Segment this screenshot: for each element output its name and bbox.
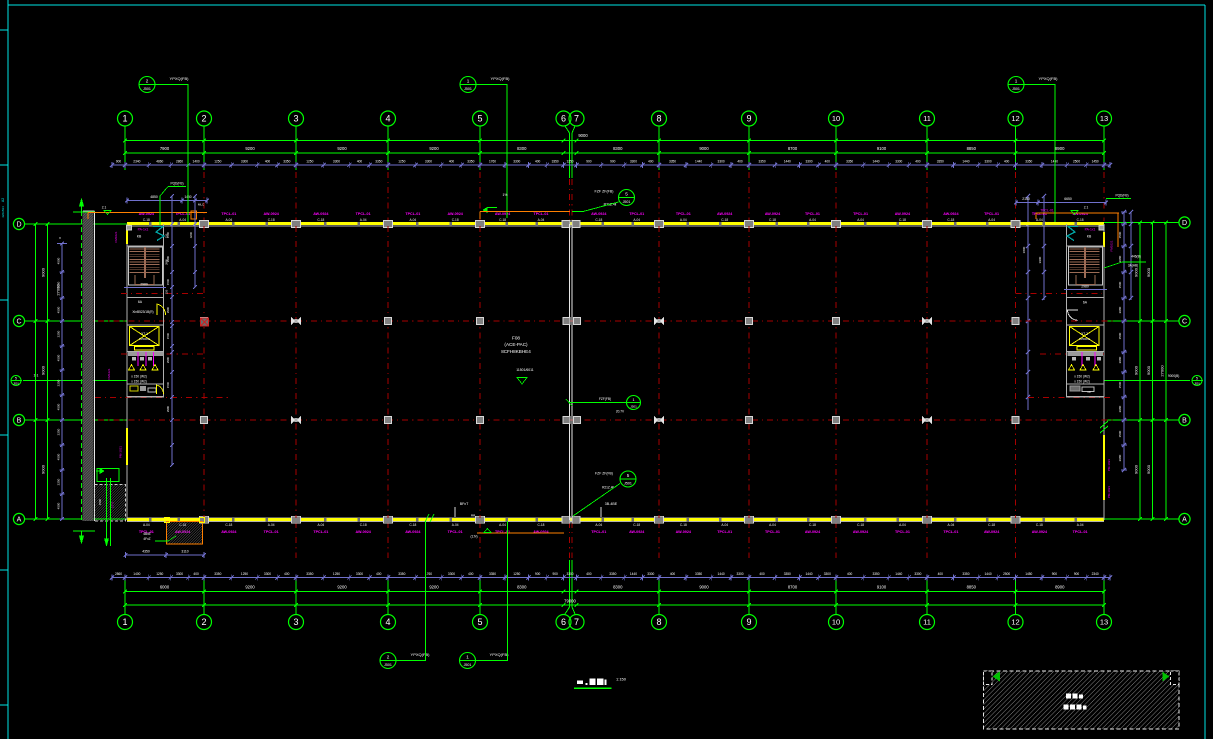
svg-text:3300: 3300 [176,572,183,576]
svg-text:YPXQ(FB): YPXQ(FB) [170,76,190,81]
svg-text:1250: 1250 [513,572,520,576]
svg-text:A-04: A-04 [538,218,545,222]
svg-text:3300: 3300 [513,160,520,164]
svg-text:C-18: C-18 [809,523,816,527]
svg-text:5: 5 [15,376,17,380]
svg-text:9000: 9000 [1146,365,1151,375]
svg-text:4FxZ: 4FxZ [143,537,150,541]
svg-text:3300: 3300 [425,160,432,164]
svg-text:5: 5 [1196,376,1198,380]
svg-text:400: 400 [265,160,271,164]
svg-text:3350: 3350 [306,572,313,576]
svg-text:AW-0924: AW-0924 [356,530,372,534]
svg-text:C-18: C-18 [899,218,906,222]
svg-text:4350: 4350 [142,550,150,554]
svg-text:2980: 2980 [1081,285,1089,289]
svg-text:1250: 1250 [241,572,248,576]
svg-text:400: 400 [376,572,382,576]
svg-text:5: 5 [477,114,482,124]
svg-text:3B-4BE: 3B-4BE [605,502,618,506]
svg-text:A-04: A-04 [409,218,416,222]
svg-text:F08: F08 [512,335,520,340]
svg-text:400: 400 [284,572,290,576]
svg-text:27000: 27000 [1160,365,1165,377]
svg-text:C-18: C-18 [317,218,324,222]
svg-text:9200: 9200 [337,585,347,590]
svg-text:9000: 9000 [578,133,588,138]
svg-text:XT-2: XT-2 [1081,332,1088,336]
svg-text:AW-0924: AW-0924 [495,212,511,216]
svg-text:8900: 8900 [1055,585,1065,590]
svg-text:TPCL-01: TPCL-01 [1040,208,1054,212]
svg-text:446(B): 446(B) [1131,254,1141,258]
svg-text:AW-0924: AW-0924 [717,212,733,216]
svg-text:3: 3 [293,114,298,124]
svg-text:3300: 3300 [895,160,902,164]
svg-text:10: 10 [832,618,840,627]
svg-text:TPCL-01: TPCL-01 [805,212,820,216]
svg-text:C-18: C-18 [268,218,275,222]
svg-text:A-04: A-04 [268,523,275,527]
svg-text:A-04: A-04 [1036,218,1043,222]
svg-text:7: 7 [574,617,579,627]
svg-text:11501/6011: 11501/6011 [516,368,534,372]
svg-text:2250: 2250 [56,281,60,288]
svg-text:9200: 9200 [429,146,439,151]
svg-text:3300: 3300 [914,572,921,576]
svg-text:3300: 3300 [824,572,831,576]
svg-text:2860: 2860 [176,160,183,164]
svg-text:3350: 3350 [846,160,853,164]
svg-text:3350: 3350 [872,572,879,576]
svg-text:AW-0924: AW-0924 [984,530,1000,534]
svg-text:6: 6 [561,114,566,124]
svg-text:A: A [17,517,22,524]
svg-text:2980: 2980 [166,306,170,313]
svg-text:1: 1 [633,398,635,402]
svg-text:2980: 2980 [166,356,170,363]
svg-text:C: C [1182,319,1187,326]
svg-text:3350: 3350 [467,160,474,164]
svg-text:1440: 1440 [895,572,902,576]
svg-text:TPCL-01: TPCL-01 [943,530,958,534]
svg-text:x 150 (W2): x 150 (W2) [1074,375,1090,379]
svg-text:11: 11 [923,114,931,123]
svg-text:TPCL-01: TPCL-01 [629,212,644,216]
svg-text:900: 900 [116,160,122,164]
svg-text:TPCL-01: TPCL-01 [676,212,691,216]
svg-text:400: 400 [449,160,455,164]
svg-text:J501: J501 [1194,382,1200,386]
svg-text:PA-1x1: PA-1x1 [138,228,149,232]
svg-text:8700: 8700 [788,585,798,590]
svg-text:2500: 2500 [1073,160,1080,164]
svg-text:TPCL-01: TPCL-01 [221,212,236,216]
svg-text:2860: 2860 [115,572,122,576]
svg-text:5: 5 [627,473,630,478]
svg-text:11: 11 [923,618,931,627]
svg-text:2500: 2500 [1003,572,1010,576]
svg-text:1050KG: 1050KG [139,337,151,341]
svg-text:400: 400 [737,160,743,164]
svg-text:AW-0924: AW-0924 [895,212,911,216]
svg-text:AW-0924: AW-0924 [591,212,607,216]
svg-text:1500: 1500 [166,332,170,339]
svg-text:2.1: 2.1 [102,206,107,210]
svg-text:9000: 9000 [41,464,46,474]
svg-text:C-18: C-18 [360,523,367,527]
svg-text:6A: 6A [1083,301,1088,305]
svg-text:J501: J501 [1012,87,1020,91]
svg-text:2980: 2980 [140,283,148,287]
svg-text:C-18: C-18 [680,523,687,527]
svg-text:9000: 9000 [1134,267,1139,277]
svg-text:1250: 1250 [398,160,405,164]
svg-text:B: B [1182,418,1187,425]
svg-text:10: 10 [832,114,840,123]
svg-text:1500: 1500 [1118,231,1122,238]
svg-text:7: 7 [574,114,579,124]
svg-text:900: 900 [586,160,592,164]
svg-text:C-18: C-18 [595,218,602,222]
svg-text:1450: 1450 [1092,160,1099,164]
svg-text:9200: 9200 [429,585,439,590]
svg-text:1: 1 [122,114,127,124]
svg-text:J501: J501 [384,663,392,667]
svg-text:1500: 1500 [1118,430,1122,437]
svg-text:C: C [16,319,21,326]
svg-text:3300: 3300 [985,160,992,164]
svg-text:3300: 3300 [264,572,271,576]
svg-text:C-18: C-18 [225,523,232,527]
svg-text:TPCL-01: TPCL-01 [356,212,371,216]
svg-text:13: 13 [1100,114,1108,123]
svg-text:1440: 1440 [985,572,992,576]
svg-text:1440: 1440 [695,160,702,164]
svg-text:2: 2 [387,655,390,660]
svg-text:TPCL-01: TPCL-01 [591,530,606,534]
svg-text:2980: 2980 [1118,454,1122,461]
svg-text:A: A [1182,517,1187,524]
svg-text:J501: J501 [143,87,151,91]
svg-text:MLC: MLC [198,202,205,206]
svg-text:AW-0924: AW-0924 [853,530,869,534]
svg-text:TPCL-01: TPCL-01 [1073,530,1088,534]
svg-text:A-04: A-04 [899,523,906,527]
svg-text:D: D [1182,220,1187,227]
svg-text:3300: 3300 [718,160,725,164]
svg-text:A-04: A-04 [452,523,459,527]
svg-text:3300: 3300 [566,572,573,576]
svg-text:400: 400 [535,160,541,164]
svg-text:x 150 (W2): x 150 (W2) [131,379,147,383]
svg-text:A-04: A-04 [143,523,150,527]
svg-text:79000: 79000 [564,598,576,603]
svg-text:9000: 9000 [41,267,46,277]
svg-text:3300: 3300 [630,160,637,164]
svg-text:3300: 3300 [736,572,743,576]
svg-text:8850: 8850 [967,585,977,590]
svg-text:C-18: C-18 [721,218,728,222]
svg-text:1500: 1500 [166,278,170,285]
svg-text:A-04: A-04 [499,523,506,527]
svg-text:12: 12 [1011,618,1019,627]
svg-text:TPCL-01: TPCL-01 [405,212,420,216]
svg-text:1250: 1250 [214,160,221,164]
svg-text:1760: 1760 [425,572,432,576]
svg-text:AW-0924: AW-0924 [221,530,237,534]
svg-text:A-04: A-04 [179,218,186,222]
svg-text:XinB523/1B(R): XinB523/1B(R) [132,310,153,314]
svg-text:C-18: C-18 [857,523,864,527]
svg-text:C-18: C-18 [1036,523,1043,527]
svg-text:2980: 2980 [1118,405,1122,412]
svg-text:4200: 4200 [189,231,193,238]
svg-text:9100: 9100 [877,146,887,151]
svg-text:20.7V: 20.7V [616,409,625,413]
svg-text:9200: 9200 [245,585,255,590]
svg-text:150: 150 [165,289,169,294]
svg-text:AW-0924: AW-0924 [448,212,464,216]
svg-text:X: X [59,236,61,240]
svg-text:TPCL-01: TPCL-01 [264,530,279,534]
svg-text:3350: 3350 [214,572,221,576]
svg-text:AW-0924: AW-0924 [629,530,645,534]
svg-text:3350: 3350 [962,572,969,576]
svg-text:400: 400 [586,572,592,576]
svg-text:1: 1 [466,655,469,660]
svg-text:9000: 9000 [41,365,46,375]
svg-text:J501: J501 [464,663,472,667]
svg-text:C-18: C-18 [769,218,776,222]
svg-text:8900: 8900 [1055,146,1065,151]
svg-text:1:150: 1:150 [616,676,627,681]
svg-text:XT-1: XT-1 [141,332,148,336]
svg-text:A-04: A-04 [857,218,864,222]
svg-text:TPCL-01: TPCL-01 [533,212,548,216]
svg-text:1760: 1760 [489,160,496,164]
svg-text:1250: 1250 [566,160,573,164]
svg-text:8300: 8300 [613,146,623,151]
svg-text:2980: 2980 [166,405,170,412]
svg-text:900: 900 [552,572,558,576]
svg-text:1500: 1500 [1118,281,1122,288]
svg-text:4500: 4500 [56,257,60,264]
svg-text:2: 2 [201,617,206,627]
svg-text:2980: 2980 [1118,255,1122,262]
svg-text:AW-0924: AW-0924 [943,212,959,216]
svg-text:3350: 3350 [759,160,766,164]
svg-text:AW-0924: AW-0924 [1032,530,1048,534]
svg-text:900: 900 [535,572,541,576]
svg-text:C-18: C-18 [947,218,954,222]
svg-text:FM1021: FM1021 [1110,240,1114,251]
svg-text:FM1021: FM1021 [114,231,118,242]
svg-text:2250: 2250 [56,428,60,435]
svg-text:3350: 3350 [398,572,405,576]
svg-text:D: D [16,222,21,229]
svg-text:A-04: A-04 [809,218,816,222]
svg-text:5: 5 [477,617,482,627]
svg-text:(1:N): (1:N) [470,534,477,538]
svg-text:YPXQ(FB): YPXQ(FB) [490,652,510,657]
svg-text:PQD(FB): PQD(FB) [1115,194,1128,198]
svg-text:C-18: C-18 [409,523,416,527]
svg-text:1440: 1440 [630,572,637,576]
svg-text:9: 9 [746,617,751,627]
svg-text:3300: 3300 [356,572,363,576]
svg-text:A-04: A-04 [360,218,367,222]
svg-text:x 150 (W2): x 150 (W2) [1074,379,1090,383]
svg-text:AW-0924: AW-0924 [676,530,692,534]
svg-text:900: 900 [610,160,616,164]
svg-text:400: 400 [1004,160,1010,164]
svg-text:1440: 1440 [805,572,812,576]
svg-text:2980: 2980 [1118,306,1122,313]
svg-text:900: 900 [1052,572,1058,576]
svg-text:8CFH8KBHE4: 8CFH8KBHE4 [501,349,531,354]
svg-text:3350: 3350 [375,160,382,164]
svg-text:PM-1021: PM-1021 [1107,486,1111,499]
svg-text:4500: 4500 [56,306,60,313]
svg-text:2250: 2250 [56,478,60,485]
svg-text:9000: 9000 [1134,464,1139,474]
svg-text:FZF ZF(FB): FZF ZF(FB) [595,471,613,475]
svg-text:420x594: 420x594 [1,206,5,218]
svg-text:1500: 1500 [166,231,170,238]
svg-text:3350: 3350 [937,160,944,164]
svg-text:AW-0924: AW-0924 [264,212,280,216]
svg-text:A-04: A-04 [1077,523,1084,527]
svg-text:C-18: C-18 [499,218,506,222]
svg-text:C-18: C-18 [143,218,150,222]
svg-text:2: 2 [146,79,149,84]
svg-text:4: 4 [385,114,390,124]
svg-text:3350: 3350 [784,572,791,576]
svg-text:BFxT: BFxT [460,502,469,506]
svg-text:8700: 8700 [788,146,798,151]
svg-text:A-04: A-04 [721,523,728,527]
svg-text:2980: 2980 [1118,356,1122,363]
svg-text:J501: J501 [464,87,472,91]
svg-text:AW-0924: AW-0924 [805,530,821,534]
svg-text:6A: 6A [138,300,143,304]
svg-text:C-18: C-18 [1077,218,1084,222]
svg-text:3300: 3300 [241,160,248,164]
svg-text:9: 9 [746,114,751,124]
svg-text:4500: 4500 [56,502,60,509]
svg-text:TPCL-01: TPCL-01 [765,530,780,534]
svg-text:3350: 3350 [669,160,676,164]
svg-text:2.1: 2.1 [1084,206,1089,210]
svg-text:400: 400 [825,160,831,164]
svg-text:A-04: A-04 [680,218,687,222]
svg-text:1250: 1250 [333,572,340,576]
svg-text:400: 400 [670,572,676,576]
svg-text:J501: J501 [13,382,19,386]
svg-text:FM1221: FM1221 [107,368,111,379]
svg-text:J501: J501 [630,405,637,409]
svg-text:A-04: A-04 [948,523,955,527]
svg-text:3300: 3300 [805,160,812,164]
svg-text:2: 2 [201,114,206,124]
svg-text:2250: 2250 [56,330,60,337]
svg-text:400: 400 [759,572,765,576]
svg-text:A-04: A-04 [595,523,602,527]
svg-text:3350: 3350 [609,572,616,576]
svg-text:1: 1 [1015,79,1018,84]
svg-text:KB: KB [137,235,142,239]
svg-text:6650: 6650 [1064,197,1072,201]
svg-text:8: 8 [656,114,661,124]
svg-text:A-04: A-04 [988,218,995,222]
svg-text:1400: 1400 [133,572,140,576]
svg-text:400: 400 [193,572,199,576]
svg-text:900: 900 [1074,572,1080,576]
svg-text:9000: 9000 [1146,464,1151,474]
svg-text:1050KG: 1050KG [1079,337,1091,341]
svg-text:1400: 1400 [193,160,200,164]
svg-text:TPCL-01: TPCL-01 [895,530,910,534]
svg-text:PQD(FB): PQD(FB) [170,182,183,186]
svg-text:2340: 2340 [1092,572,1099,576]
svg-text:400: 400 [357,160,363,164]
svg-text:400: 400 [938,572,944,576]
svg-text:2150: 2150 [1022,197,1030,201]
svg-text:AW-0924: AW-0924 [765,212,781,216]
svg-text:3300: 3300 [448,572,455,576]
svg-text:3110: 3110 [181,550,188,554]
svg-text:8300: 8300 [517,585,527,590]
svg-text:3350: 3350 [489,572,496,576]
svg-text:A2: A2 [1,198,5,202]
svg-text:1250: 1250 [156,572,163,576]
svg-text:PA-1x1: PA-1x1 [1085,228,1096,232]
svg-text:12: 12 [1011,114,1019,123]
svg-text:6: 6 [561,617,566,627]
svg-text:3350: 3350 [1025,160,1032,164]
svg-text:PM-1021: PM-1021 [119,446,123,459]
svg-text:1: 1 [122,617,127,627]
svg-text:C-18: C-18 [633,523,640,527]
svg-text:1440: 1440 [718,572,725,576]
svg-text:J501: J501 [624,482,632,486]
svg-text:1440: 1440 [784,160,791,164]
svg-text:9000: 9000 [1134,365,1139,375]
svg-text:8850: 8850 [967,146,977,151]
svg-text:13: 13 [1100,618,1108,627]
svg-text:5: 5 [625,192,628,197]
svg-text:4BxE: 4BxE [143,532,151,536]
svg-text:A-04: A-04 [769,523,776,527]
svg-text:C-18: C-18 [537,523,544,527]
svg-text:A-04: A-04 [633,218,640,222]
svg-text:4500: 4500 [56,354,60,361]
svg-text:FZF(FB): FZF(FB) [599,397,611,401]
svg-text:400: 400 [468,572,474,576]
svg-text:1500: 1500 [166,381,170,388]
svg-text:3: 3 [293,617,298,627]
svg-text:1500: 1500 [1118,332,1122,339]
svg-text:4850: 4850 [150,195,158,199]
svg-text:TPCL-01: TPCL-01 [448,530,463,534]
svg-text:B: B [17,418,22,425]
svg-text:400: 400 [847,572,853,576]
svg-text:1500: 1500 [98,498,102,505]
svg-text:3900: 3900 [1038,256,1042,263]
svg-text:3350: 3350 [552,160,559,164]
svg-text:9200: 9200 [245,146,255,151]
